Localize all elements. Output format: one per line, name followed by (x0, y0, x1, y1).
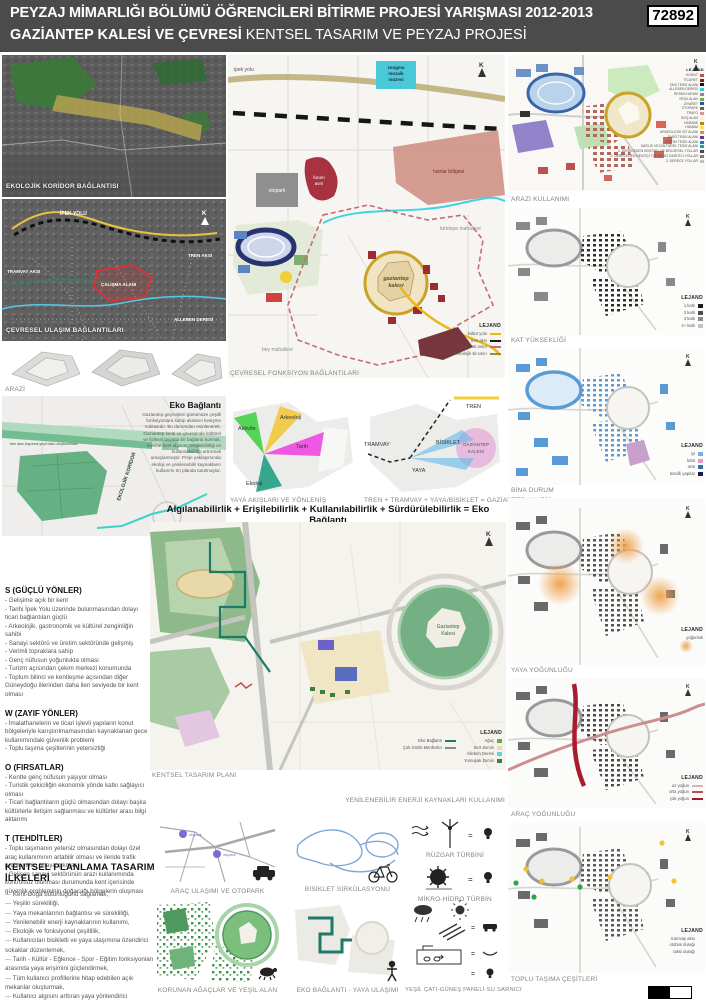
castle-label-1: GAZİANTEP (463, 441, 489, 447)
equals-sign: = (471, 971, 475, 978)
hanlar-district-label: hanlar bölgesi (433, 169, 464, 175)
swot-w-title: W (ZAYIF YÖNLER) (5, 709, 149, 718)
green-axis-note: tren aksı boyunca yeşil doku oluşturulma… (10, 442, 78, 446)
poster-subtitle-bold: GAZİANTEP KALESİ VE ÇEVRESİ (10, 27, 242, 43)
building-condition-caption: BİNA DURUM (511, 487, 554, 494)
land-use-map: K LEJAND KONUTTİCARETDİNİ TESİS ALANIALL… (508, 55, 705, 191)
zeugma-label-2: mozaik (388, 71, 404, 76)
forum-avm-label-2: avm (315, 181, 324, 186)
activity-label: Aktivite (238, 426, 256, 432)
train-axis-label: TREN AKSI (188, 253, 212, 258)
swot-item: - Toplu taşıma çeşitlerinin yetersizliği (5, 745, 149, 754)
principle-item: Yeşilin sürekliliği, (5, 899, 155, 908)
pedestrian-density-map: K LEJAND yoğunluk (508, 498, 705, 665)
bowl-icon (483, 952, 497, 955)
bicycle-circulation-diagram (290, 815, 405, 885)
swot-w-list: - İmalathanelerin ve ticari işlevli yapı… (5, 720, 149, 754)
hydro-turbine-graphic: = (408, 862, 503, 894)
swot-item: - Arkeolojik, gastronomik ve kültürel ze… (5, 623, 149, 640)
swot-item: - İmalathanelerin ve ticari işlevli yapı… (5, 720, 149, 746)
functional-map-legend: LEJAND kültür yolutren aksıkentsel sit s… (427, 323, 501, 357)
north-arrow-icon: K (478, 62, 486, 77)
swot-item: - Turizm açısından çekim merkezi konumun… (5, 665, 149, 674)
eco-connection-paragraph: Gaziantep geçmişten günümüze çeşitli fon… (141, 412, 221, 474)
header: PEYZAJ MİMARLIĞI BÖLÜMÜ ÖĞRENCİLERİ BİTİ… (0, 0, 706, 52)
hydro-turbine-icon (426, 866, 452, 889)
sun-icon (451, 900, 469, 920)
wind-turbine-caption: RÜZGAR TÜRBİNİ (405, 852, 505, 859)
land-use-caption: ARAZİ KULLANIMI (511, 196, 569, 203)
public-transport-map: K LEJAND tramvay aksıotobüs durağıtaksi … (508, 823, 705, 973)
train-label: TREN (466, 404, 481, 410)
svg-text:K: K (486, 531, 491, 538)
legend-item: Yumuşak Zemin (464, 758, 502, 765)
legend-item: tescilli yapılar (645, 471, 703, 478)
vehicle-density-map: K LEJAND az yoğunorta yoğunçok yoğun (508, 678, 705, 808)
principle-item: Yaya mekanlarının bağlantısı ve süreklil… (5, 909, 155, 918)
car-access-diagram: otopark otopark (155, 812, 280, 887)
bey-district-label: bey mahallesi (262, 347, 293, 353)
swot-t-title: T (TEHDİTLER) (5, 834, 149, 843)
principle-item: Tarih - Kültür - Eğlence - Spor - Eğitim… (5, 955, 155, 974)
master-plan-caption: KENTSEL TASARIM PLANI (152, 772, 236, 779)
castle-label-2: KALESİ (468, 448, 484, 454)
pedestrian-flows-graphic: Aktivite Arkeoloji Tarih Ekoloji (228, 392, 358, 502)
building-heights-legend: LEJAND 1 katlı2 katlı3 katlı4+ katlı (651, 295, 703, 329)
poster: PEYZAJ MİMARLIĞI BÖLÜMÜ ÖĞRENCİLERİ BİTİ… (0, 0, 706, 1000)
turtle-icon (259, 968, 277, 981)
north-arrow-icon: K (485, 531, 493, 546)
ecological-corridor-map-graphic (2, 55, 226, 197)
wind-turbine-diagram: = (408, 818, 503, 850)
zeugma-label-3: müzesi (388, 77, 403, 82)
building-condition-legend: LEJAND iyikötüortatescilli yapılar (645, 443, 703, 477)
swot-s-title: S (GÜÇLÜ YÖNLER) (5, 586, 149, 595)
poster-subtitle: GAZİANTEP KALESİ VE ÇEVRESİ KENTSEL TASA… (10, 27, 527, 43)
eco-pedestrian-caption: EKO BAĞLANTI - YAYA ULAŞIMI (290, 987, 405, 994)
swot-item: - Sanayi sektörü ve üretim sektöründe ge… (5, 640, 149, 649)
legend-item: yoğunluk (653, 635, 703, 642)
pedestrian-density-caption: YAYA YOĞUNLUĞU (511, 667, 573, 674)
green-roof-graphic: = = = (405, 900, 505, 985)
legend-item: Çok Gözlü Menfezler (403, 745, 456, 752)
master-plan-legend: LEJAND Eko BağlantıÇok Gözlü Menfezler A… (384, 730, 502, 764)
lightbulb-icon (484, 872, 492, 883)
public-transport-legend: LEJAND tramvay aksıotobüs durağıtaksi du… (647, 928, 703, 956)
vehicle-density-caption: ARAÇ YOĞUNLUĞU (511, 811, 575, 818)
silk-road-label: İPEK YOLU (60, 210, 87, 217)
swot-o-title: O (FIRSATLAR) (5, 763, 149, 772)
swot-o-list: - Kentte genç nüfusun yaşıyor olması- Tu… (5, 774, 149, 825)
parking-dot-label-1: otopark (189, 833, 202, 837)
ecological-corridor-caption: EKOLOJİK KORİDOR BAĞLANTISI (6, 183, 119, 190)
alleben-creek-label: ALLEBEN DERESİ (174, 316, 213, 322)
tram-axis-label: TRAMVAY AKSI (7, 269, 40, 274)
wind-turbine-icon (442, 819, 458, 848)
master-plan: Gaziantep Kalesi K LEJAND Eko BağlantıÇo… (150, 522, 506, 770)
building-heights-map: K LEJAND 1 katlı2 katlı3 katlı4+ katlı (508, 208, 705, 335)
scale-bar (648, 986, 692, 999)
equals-sign: = (471, 951, 475, 958)
terrain-models-graphic (2, 344, 226, 394)
solar-panel-icon (439, 924, 465, 940)
public-transport-caption: TOPLU TAŞIMA ÇEŞİTLERİ (511, 976, 597, 983)
swot-item: - Kentte genç nüfusun yaşıyor olması (5, 774, 149, 783)
svg-text:K: K (202, 211, 207, 217)
building-heights-caption: KAT YÜKSEKLİĞİ (511, 337, 566, 344)
bicycle-circulation-graphic (290, 815, 405, 885)
svg-text:K: K (479, 62, 484, 69)
equals-sign: = (468, 875, 473, 884)
eco-pedestrian-graphic (290, 900, 405, 985)
planning-principles-list: Kent-Doğa bütünlüğünü sağlamak,Yeşilin s… (5, 890, 155, 1000)
bicycle-circulation-caption: BİSİKLET SİRKÜLASYONU (290, 886, 405, 893)
bicycle-label: BİSİKLET (436, 439, 461, 446)
equals-sign: = (471, 925, 475, 932)
principle-item: Kent-Doğa bütünlüğünü sağlamak, (5, 890, 155, 899)
principle-item: Tüm kullanıcı profillerine hitap edebile… (5, 974, 155, 993)
poster-subtitle-rest: KENTSEL TASARIM VE PEYZAJ PROJESİ (242, 27, 527, 43)
swot-item: - Turistik çekiciliğin ekonomik yönde ka… (5, 782, 149, 799)
vehicle-density-legend: LEJAND az yoğunorta yoğunçok yoğun (649, 775, 703, 803)
terrain-models (2, 344, 226, 394)
swot-item: - Genç nüfusun yoğunlukta olması (5, 657, 149, 666)
pedestrian-label: YAYA (412, 468, 426, 474)
swot-item: - Toplum bilinci ve kentleşme açısından … (5, 674, 149, 700)
protected-trees-diagram (155, 900, 280, 985)
building-condition-map: K LEJAND iyikötüortatescilli yapılar (508, 348, 705, 485)
renewable-energy-heading: YENİLENEBİLİR ENERJİ KAYNAKLARI KULLANIM… (330, 797, 505, 804)
car-icon (483, 924, 497, 932)
axes-diagram: TREN TRAMVAY BİSİKLET YAYA GAZİANTEP KAL… (362, 392, 505, 502)
lightbulb-icon (484, 828, 492, 839)
protected-trees-caption: KORUNAN AĞAÇLAR VE YEŞİL ALAN (155, 987, 280, 994)
eco-corridor-label: EKOLOJİK KORİDOR (115, 451, 137, 502)
turktepe-label: türktepe mahallesi (440, 226, 481, 232)
cistern-icon (417, 946, 461, 964)
car-icon (253, 866, 275, 881)
poster-title: PEYZAJ MİMARLIĞI BÖLÜMÜ ÖĞRENCİLERİ BİTİ… (10, 5, 593, 21)
pedestrian-flows-caption: YAYA AKIŞLARI VE YÖNLENİŞ (230, 497, 326, 504)
swot-analysis: S (GÜÇLÜ YÖNLER) - Gelişime açık bir ken… (5, 586, 149, 905)
zeugma-label-1: zeugma (388, 65, 405, 70)
wind-turbine-graphic: = (408, 818, 503, 850)
lightbulb-icon (487, 969, 494, 979)
legend-item: taksi durağı (647, 949, 703, 956)
entry-number-badge: 72892 (647, 5, 699, 27)
legend-item: 3. DERECE YOLLAR (642, 159, 704, 164)
forum-avm-label-1: forum (313, 175, 325, 180)
history-label: Tarih (296, 444, 308, 450)
transport-connections-map-graphic: İPEK YOLU TREN AKSI TRAMVAY AKSI ÇALIŞMA… (2, 199, 226, 341)
green-roof-diagram: = = = (405, 900, 505, 985)
principle-item: Ekolojik ve fonksiyonel çeşitlilik, (5, 927, 155, 936)
principle-item: Yenilenebilir enerji kaynaklarının kulla… (5, 918, 155, 927)
planning-principles-title: KENTSEL PLANLAMA TASARIM İLKELERİ (5, 862, 155, 884)
eco-connection-title: Eko Bağlantı (170, 400, 221, 410)
legend-item: arkeolojik sit sınırı (427, 351, 501, 358)
legend-item: 4+ katlı (651, 323, 703, 330)
eco-pedestrian-diagram (290, 900, 405, 985)
ecological-corridor-map: EKOLOJİK KORİDOR BAĞLANTISI (2, 55, 226, 197)
axes-diagram-graphic: TREN TRAMVAY BİSİKLET YAYA GAZİANTEP KAL… (362, 392, 505, 502)
castle-label-1: Gaziantep (437, 624, 460, 630)
archaeology-label: Arkeoloji (280, 415, 301, 421)
planning-principles: KENTSEL PLANLAMA TASARIM İLKELERİ Kent-D… (5, 862, 155, 1000)
swot-item: - Ticari bağlantıların güçlü olmasından … (5, 799, 149, 825)
protected-trees-graphic (155, 900, 280, 985)
land-use-legend: LEJAND KONUTTİCARETDİNİ TESİS ALANIALLEB… (642, 67, 704, 164)
rain-cloud-icon (414, 905, 432, 922)
swot-item: - Gelişime açık bir kent (5, 597, 149, 606)
legend-item: çok yoğun (649, 796, 703, 803)
car-access-caption: ARAÇ ULAŞIMI VE OTOPARK (155, 888, 280, 895)
castle-label-2: Kalesi (441, 631, 455, 637)
principle-item: Kullanıcıları bisikletli ve yaya ulaşımı… (5, 936, 155, 955)
study-area-label: ÇALIŞMA ALANI (101, 282, 136, 287)
transport-connections-map: İPEK YOLU TREN AKSI TRAMVAY AKSI ÇALIŞMA… (2, 199, 226, 341)
pedestrian-flows-diagram: Aktivite Arkeoloji Tarih Ekoloji (228, 392, 358, 502)
pedestrian-density-legend: LEJAND yoğunluk (653, 627, 703, 642)
green-roof-caption: YEŞİL ÇATI-GÜNEŞ PANELİ-SU SARNICI (405, 987, 505, 993)
swot-item: - Verimli topraklara sahip (5, 648, 149, 657)
functional-connections-caption: ÇEVRESEL FONKSİYON BAĞLANTILARI (230, 370, 359, 377)
wind-arrows-icon (412, 826, 428, 836)
parking-dot-label-2: otopark (223, 853, 236, 857)
car-access-graphic: otopark otopark (155, 812, 280, 887)
equals-sign: = (468, 831, 473, 840)
principle-item: Kullanıcı algısını arttıran yaya yönlend… (5, 992, 155, 1000)
tram-label: TRAMVAY (364, 442, 390, 448)
transport-connections-caption: ÇEVRESEL ULAŞIM BAĞLANTILARI (6, 327, 124, 334)
silk-road-label: ipek yolu (234, 67, 254, 73)
bicycle-icon (369, 865, 397, 882)
hydro-turbine-diagram: = (408, 862, 503, 894)
parking-label: otopark (269, 188, 286, 194)
ecology-label: Ekoloji (246, 481, 262, 487)
castle-label-1: gaziantep (382, 276, 409, 282)
functional-connections-map: zeugma mozaik müzesi ipek yolu K hanlar … (228, 55, 505, 378)
swot-item: - Tarihi İpek Yolu üzerinde bulunmasında… (5, 606, 149, 623)
swot-s-list: - Gelişime açık bir kent- Tarihi İpek Yo… (5, 597, 149, 700)
terrain-caption: ARAZİ (5, 386, 25, 393)
